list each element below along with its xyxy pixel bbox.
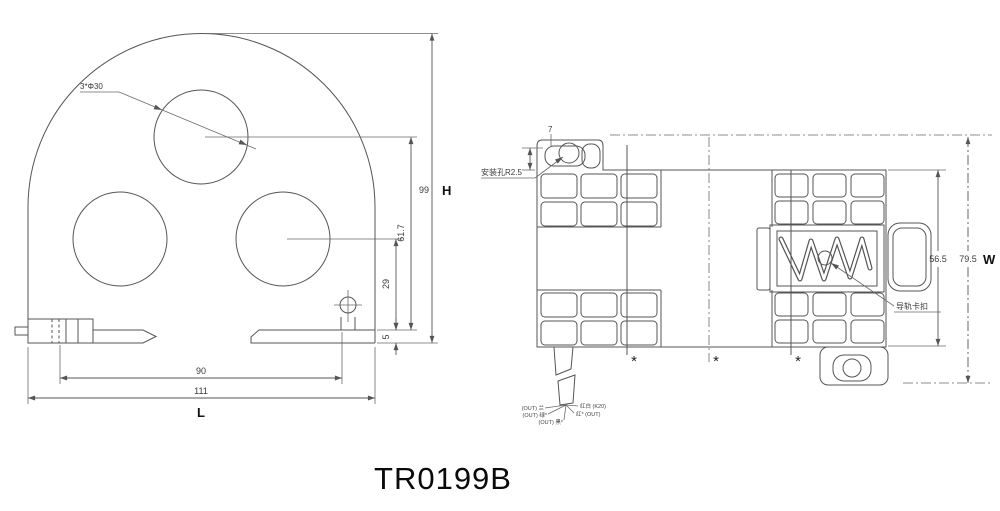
svg-text:7: 7 [548,125,553,134]
vent-cell [851,201,884,224]
mounting-keyhole-bottom [820,347,888,385]
width-symbol: L [197,405,205,420]
vent-cell [851,293,884,316]
dim-mount-span: 90 [60,366,342,378]
wire-label-5: 红* (OUT) [576,410,601,418]
vent-cell [813,201,846,224]
svg-text:29: 29 [381,279,391,289]
rail-clip-label: 导轨卡扣 [896,301,928,311]
svg-text:79.5: 79.5 [959,254,977,264]
rail-lip-left [93,330,156,343]
vent-cell [621,293,657,317]
mount-hole-label: 安装孔R2.5 [481,167,522,177]
dim-foot-height: 5 [381,318,396,355]
vent-cell [581,202,617,226]
side-view: 安装孔R2.5 7 [481,125,996,426]
svg-text:56.5: 56.5 [929,254,947,264]
height-symbol: H [442,183,451,198]
asterisk-2: * [713,353,719,370]
svg-text:5: 5 [381,334,391,339]
hole-diameter-leader: 3*Φ30 [80,82,256,149]
front-view: 3*Φ30 61.7 29 5 99 H [15,34,451,421]
dim-lower-hole-height: 29 [381,239,396,330]
vent-cell [851,320,884,343]
vent-cell [581,293,617,317]
vent-grid-top-left [541,174,657,226]
asterisk-3: * [795,353,801,370]
vent-cell [621,202,657,226]
svg-text:61.7: 61.7 [396,224,406,242]
output-cable: (OUT) 兰 (OUT) 绿* (OUT) 黑* 红白 (K20) 红* (O… [522,347,606,426]
svg-text:90: 90 [196,366,206,376]
dim-overall-height: 99 H [419,34,451,344]
wire-label-2: (OUT) 绿* [523,411,548,419]
wire-label-3: (OUT) 黑* [539,419,564,426]
din-foot-left [15,319,93,343]
vent-cell [541,321,577,345]
screw-hole [334,290,362,330]
svg-text:111: 111 [194,386,208,396]
vent-grid-bottom-left [541,293,657,345]
rail-lip-right [251,330,375,343]
vent-cell [541,174,577,198]
vent-cell [581,174,617,198]
svg-text:99: 99 [419,185,429,195]
asterisk-1: * [631,353,637,370]
drawing-canvas: 3*Φ30 61.7 29 5 99 H [0,0,1000,511]
vent-cell [541,293,577,317]
holes-label: 3*Φ30 [80,82,103,91]
dim-overall-depth: 79.5 W [959,137,996,383]
rail-clip [757,223,931,292]
technical-drawing: 3*Φ30 61.7 29 5 99 H [0,0,1000,511]
vent-cell [621,321,657,345]
vent-cell [813,293,846,316]
wire-label-1: (OUT) 兰 [522,404,545,412]
housing-outline [28,34,375,343]
wire-label-4: 红白 (K20) [580,402,606,410]
vent-cell [541,202,577,226]
drawing-title: TR0199B [374,461,512,496]
vent-cell [581,321,617,345]
dim-hole-center-height: 61.7 [396,137,411,330]
depth-symbol: W [983,252,996,267]
vent-cell [813,320,846,343]
vent-cell [851,174,884,197]
dim-overall-width: 111 L [28,386,375,420]
mount-hole-callout: 安装孔R2.5 [481,157,563,178]
vent-cell [621,174,657,198]
conductor-hole-left [73,192,167,286]
dim-body-depth: 56.5 [929,170,947,346]
vent-cell [813,174,846,197]
